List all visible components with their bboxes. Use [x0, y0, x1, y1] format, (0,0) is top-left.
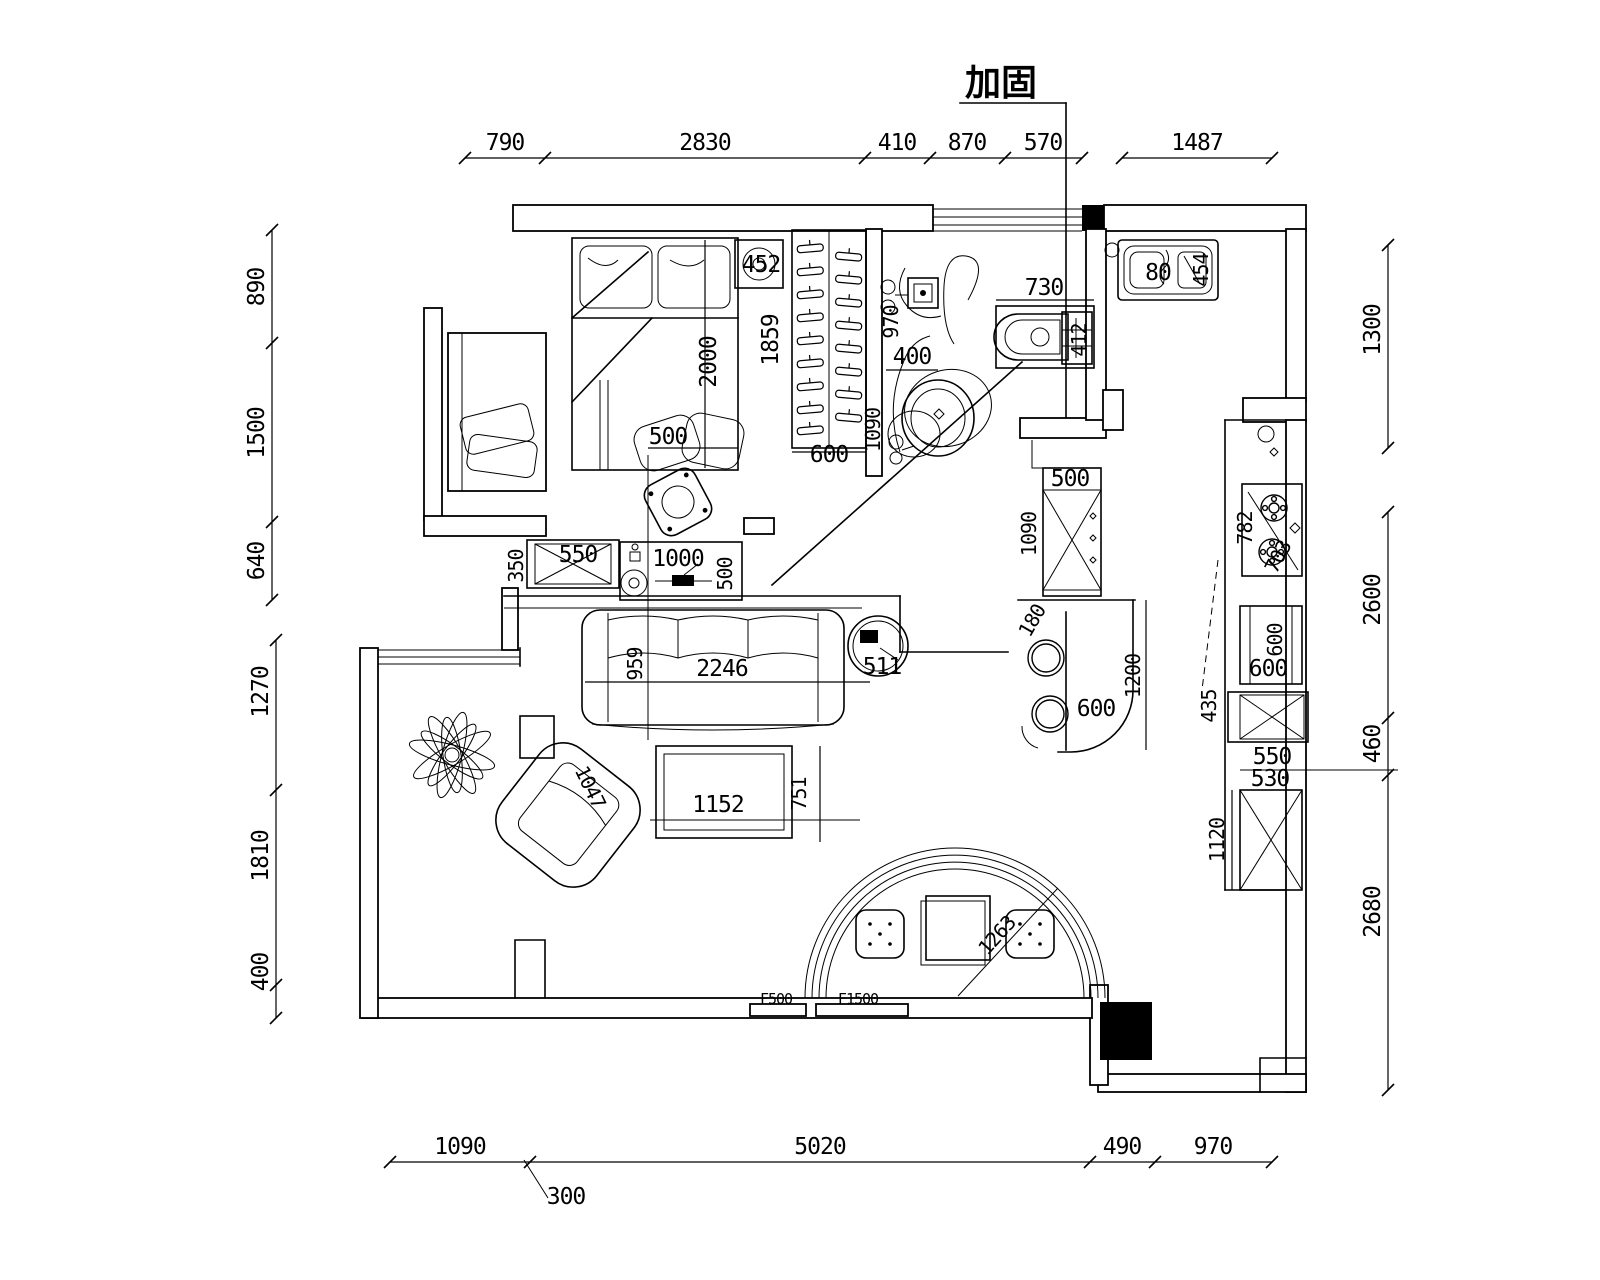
wall: [362, 998, 1092, 1018]
pillow: [580, 246, 652, 308]
walls: [360, 205, 1306, 1092]
dim-bottom-1090: 1090: [434, 1134, 486, 1160]
toilet: 730 412: [994, 275, 1094, 368]
closet-length-label: 1859: [758, 314, 784, 366]
armchair-label: 1047: [570, 762, 611, 812]
side-stand: [520, 716, 554, 758]
dim-left-640: 640: [244, 542, 270, 581]
toilet-depth-label: 412: [1067, 323, 1091, 356]
dim-top-790: 790: [486, 130, 525, 156]
armchair: 1047: [484, 731, 652, 899]
side-table: 511: [848, 616, 908, 680]
bedside-appliance: 452: [735, 240, 783, 288]
dim-left-1270: 1270: [248, 666, 274, 718]
entry-cabinet: [1100, 1002, 1152, 1060]
fridge-width-label: 500: [1051, 466, 1090, 492]
fridge-run-label: 1090: [1017, 512, 1041, 556]
window-label-f500: F500: [760, 990, 793, 1008]
wall: [1098, 1074, 1306, 1092]
dim-right-1300: 1300: [1360, 304, 1386, 356]
dim-left-400: 400: [248, 953, 274, 992]
dim-top-570: 570: [1024, 130, 1063, 156]
bay-radius-label: 1263: [973, 911, 1020, 960]
dim-top-2830: 2830: [679, 130, 731, 156]
window-label-f1500: F1500: [838, 990, 879, 1008]
sofa-depth-label: 959: [623, 647, 647, 680]
balcony-window: [378, 648, 520, 666]
table-depth-label: 751: [787, 777, 811, 810]
dim-bottom-490: 490: [1103, 1134, 1142, 1160]
wall: [424, 308, 442, 520]
dim-left-1810: 1810: [248, 830, 274, 882]
dim-top-1487: 1487: [1171, 130, 1223, 156]
drain-run-label: 970: [879, 305, 903, 338]
dim-bottom-5020: 5020: [794, 1134, 846, 1160]
bathroom-top-window: [933, 209, 1082, 231]
wall-step: [515, 940, 545, 998]
swivel-chair: [640, 464, 716, 540]
dining-bay: 1263 F500 F1500: [760, 848, 1105, 1008]
top-dimension-line: 790 2830 410 870 570 1487: [459, 130, 1278, 164]
toilet-width-label: 730: [1025, 275, 1064, 301]
fridge-cabinet: 500 1090: [1017, 466, 1101, 596]
floor-plan-page: 加固: [0, 0, 1600, 1280]
closet-depth-label: 600: [810, 442, 849, 468]
kitchen-sink: 80 454: [1105, 240, 1218, 300]
basin-run-label: 1090: [861, 408, 885, 452]
plant: [407, 710, 497, 800]
tv-icon: [672, 575, 694, 586]
bar-width-label: 600: [1077, 696, 1116, 722]
dim-bottom-offset-300: 300: [547, 1184, 586, 1210]
cabinet-350-label: 350: [504, 549, 528, 582]
coffee-table: 1152 751: [650, 746, 860, 842]
cabinet-side-label: 435: [1197, 689, 1221, 722]
left-dimension-line: 890 1500 640 1270 1810 400: [244, 224, 282, 1024]
wall-stub: [744, 518, 774, 534]
pillow: [658, 246, 730, 308]
title-label: 加固: [965, 63, 1037, 104]
floor-plan-drawing: 加固: [0, 0, 1600, 1280]
stove-label-a: 782: [1233, 511, 1257, 544]
dim-right-460: 460: [1360, 725, 1386, 764]
living-divider: [504, 596, 1008, 652]
tv-console: 1000 500: [620, 542, 742, 600]
dim-top-870: 870: [948, 130, 987, 156]
dim-top-410: 410: [878, 130, 917, 156]
cabinet-label-b: 600: [1249, 656, 1288, 682]
dim-right-2680: 2680: [1360, 886, 1386, 938]
wall: [1104, 205, 1306, 231]
tv-width-label: 1000: [652, 546, 704, 572]
wall: [424, 516, 546, 536]
door-swing-line: [772, 362, 1022, 585]
sofa: 959 2246: [582, 610, 870, 730]
basin-width-label: 400: [893, 344, 932, 370]
bay-table-shadow: [921, 901, 985, 965]
tv-depth-label: 500: [713, 557, 737, 590]
bar-gap-label: 180: [1013, 600, 1050, 641]
appliance-label: 452: [742, 252, 781, 278]
wall-notch: [1243, 398, 1306, 422]
dim-bottom-970: 970: [1194, 1134, 1233, 1160]
cabinet-label-a: 600: [1263, 623, 1287, 656]
sink-label-b: 454: [1189, 252, 1213, 286]
sofa-width-label: 2246: [696, 656, 748, 682]
table-width-label: 1152: [692, 792, 743, 818]
wall: [1286, 229, 1306, 401]
x-cabinet-tv-left: 550 350: [504, 540, 619, 588]
bar-counter: 180 600 1200: [1013, 600, 1146, 752]
bed-length-label: 2000: [696, 336, 722, 388]
cabinet-550-label: 550: [559, 542, 598, 568]
bar-run-label: 1200: [1121, 654, 1145, 698]
counter-step: [1032, 440, 1044, 468]
bed-width-label: 500: [649, 424, 688, 450]
wall-column: [1082, 205, 1104, 231]
dim-left-890: 890: [244, 268, 270, 307]
bottom-dimension-line: 1090 5020 490 970 300: [384, 1134, 1278, 1210]
phone-icon: [860, 630, 878, 643]
bed-cushion: [679, 411, 746, 472]
wall: [513, 205, 933, 231]
wall-stub: [1103, 390, 1123, 430]
dim-left-1500: 1500: [244, 407, 270, 459]
dim-right-2600: 2600: [1360, 574, 1386, 626]
bay-window-seat: [448, 333, 546, 491]
wall: [1020, 418, 1106, 438]
wall-stub: [502, 588, 518, 650]
wall: [360, 648, 378, 1018]
sink-label-a: 80: [1145, 260, 1171, 286]
tall-cabinet-label: 1120: [1205, 818, 1229, 862]
right-dimension-line: 1300 2600 460 2680: [1360, 239, 1394, 1096]
radius-line: [958, 888, 1058, 996]
side-table-label: 511: [863, 654, 902, 680]
